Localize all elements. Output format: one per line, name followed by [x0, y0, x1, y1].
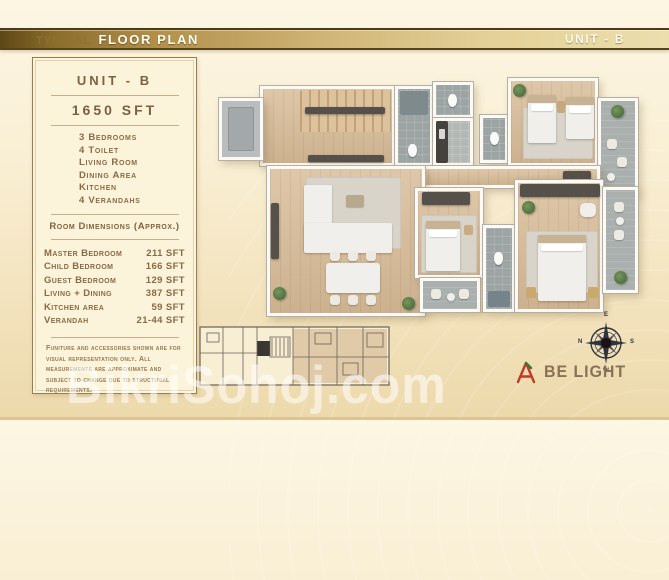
verandah-chair — [617, 157, 627, 167]
compass-left-label: N — [578, 339, 582, 345]
feature-item: Kitchen — [79, 182, 196, 195]
wardrobe — [422, 192, 470, 205]
shower-area — [488, 291, 510, 307]
title-bar: TYPICAL FLOOR PLAN UNIT - B — [0, 28, 669, 50]
verandah-chair — [614, 230, 624, 240]
feature-item: 3 Bedrooms — [79, 132, 196, 145]
verandah-chair — [459, 289, 469, 299]
stair-handrail — [305, 107, 385, 114]
room-stair-hall — [260, 86, 395, 166]
room-bathroom-2 — [433, 82, 473, 118]
room-kitchen — [433, 118, 473, 166]
room-living-dining — [267, 166, 425, 316]
nightstand — [526, 287, 536, 298]
dining-chair — [366, 295, 376, 305]
room-guest-bedroom — [415, 188, 483, 278]
title-bar-left: TYPICAL FLOOR PLAN — [36, 32, 199, 47]
dining-chair — [348, 251, 358, 261]
compass-top-label: E — [604, 312, 608, 318]
kitchen-counter — [436, 121, 448, 163]
feature-item: 4 Toilet — [79, 145, 196, 158]
verandah-master — [603, 187, 638, 293]
title-unit-label: UNIT - B — [565, 32, 625, 46]
title-typical: TYPICAL — [36, 35, 91, 47]
nightstand — [588, 287, 598, 298]
coffee-table — [346, 195, 364, 207]
toilet — [408, 144, 417, 157]
dining-chair — [348, 295, 358, 305]
child-bed-2 — [566, 97, 594, 139]
dimension-area: 21-44 SFT — [137, 314, 185, 327]
feature-item: Living Room — [79, 157, 196, 170]
room-elevator — [219, 98, 263, 160]
verandah-child — [598, 98, 638, 194]
verandah-guest — [420, 278, 480, 312]
divider — [51, 337, 179, 338]
title-floor-plan: FLOOR PLAN — [98, 32, 199, 47]
dimension-area: 166 SFT — [146, 260, 185, 273]
dimension-area: 129 SFT — [146, 274, 185, 287]
master-bed — [538, 235, 586, 301]
dimension-row: Guest Bedroom 129 SFT — [44, 274, 185, 287]
plant — [614, 271, 627, 284]
verandah-table — [607, 173, 615, 181]
dimension-room: Verandah — [44, 314, 89, 327]
dimension-room: Guest Bedroom — [44, 274, 116, 287]
dining-chair — [330, 251, 340, 261]
room-wc — [480, 115, 508, 163]
divider — [51, 95, 179, 96]
nightstand — [557, 101, 565, 113]
guest-bed — [426, 221, 460, 271]
plant — [611, 105, 624, 118]
sofa-seat — [304, 223, 392, 253]
dimension-room: Living + Dining — [44, 287, 112, 300]
dimension-area: 387 SFT — [146, 287, 185, 300]
room-master-bathroom — [483, 225, 515, 312]
dimension-row: Verandah 21-44 SFT — [44, 314, 185, 327]
brand-logo: BE LIGHT — [514, 359, 631, 385]
floor-plan-render — [205, 70, 645, 322]
compass-right-label: S — [630, 339, 634, 345]
room-child-bedroom — [508, 78, 598, 166]
verandah-table — [447, 293, 455, 301]
watermark-text: BikriSohoj.com — [66, 355, 447, 416]
console-table — [308, 155, 384, 162]
feature-item: Dining Area — [79, 170, 196, 183]
feature-list: 3 Bedrooms 4 Toilet Living Room Dining A… — [33, 132, 196, 207]
verandah-table — [616, 217, 624, 225]
room-master-bedroom — [515, 180, 603, 312]
dimension-area: 59 SFT — [151, 301, 185, 314]
dimension-room: Child Bedroom — [44, 260, 113, 273]
shower-area — [400, 91, 428, 115]
brand-a-mark-icon — [514, 359, 538, 385]
panel-unit-title: UNIT - B — [33, 73, 196, 88]
divider — [51, 239, 179, 240]
dimension-row: Master Bedroom 211 SFT — [44, 247, 185, 260]
toilet — [448, 94, 457, 107]
panel-area-value: 1650 SFT — [33, 102, 196, 118]
divider — [51, 214, 179, 215]
dimension-room: Master Bedroom — [44, 247, 122, 260]
room-common-bathroom — [395, 86, 433, 166]
plant — [402, 297, 415, 310]
feature-item: 4 Verandahs — [79, 195, 196, 208]
verandah-chair — [614, 202, 624, 212]
brand-name: BE LIGHT — [544, 362, 626, 382]
dining-chair — [366, 251, 376, 261]
dimensions-table: Master Bedroom 211 SFT Child Bedroom 166… — [33, 246, 196, 327]
dining-table — [326, 263, 380, 293]
verandah-chair — [607, 139, 617, 149]
elevator-cab — [228, 107, 254, 151]
info-panel: UNIT - B 1650 SFT 3 Bedrooms 4 Toilet Li… — [32, 57, 197, 394]
dimension-row: Living + Dining 387 SFT — [44, 287, 185, 300]
toilet — [490, 132, 499, 145]
dimension-area: 211 SFT — [146, 247, 185, 260]
verandah-chair — [431, 289, 441, 299]
plant — [273, 287, 286, 300]
toilet — [494, 252, 503, 265]
dimension-row: Child Bedroom 166 SFT — [44, 260, 185, 273]
tv-console — [271, 203, 279, 259]
plant — [522, 201, 535, 214]
armchair — [580, 203, 596, 217]
dining-chair — [330, 295, 340, 305]
wardrobe — [520, 184, 600, 197]
dimensions-title: Room Dimensions (Approx.) — [33, 221, 196, 232]
plant — [513, 84, 526, 97]
dimension-row: Kitchen area 59 SFT — [44, 301, 185, 314]
child-bed-1 — [528, 95, 556, 143]
kitchen-sink — [439, 129, 445, 139]
nightstand — [464, 225, 473, 235]
divider — [51, 125, 179, 126]
dimension-room: Kitchen area — [44, 301, 104, 314]
